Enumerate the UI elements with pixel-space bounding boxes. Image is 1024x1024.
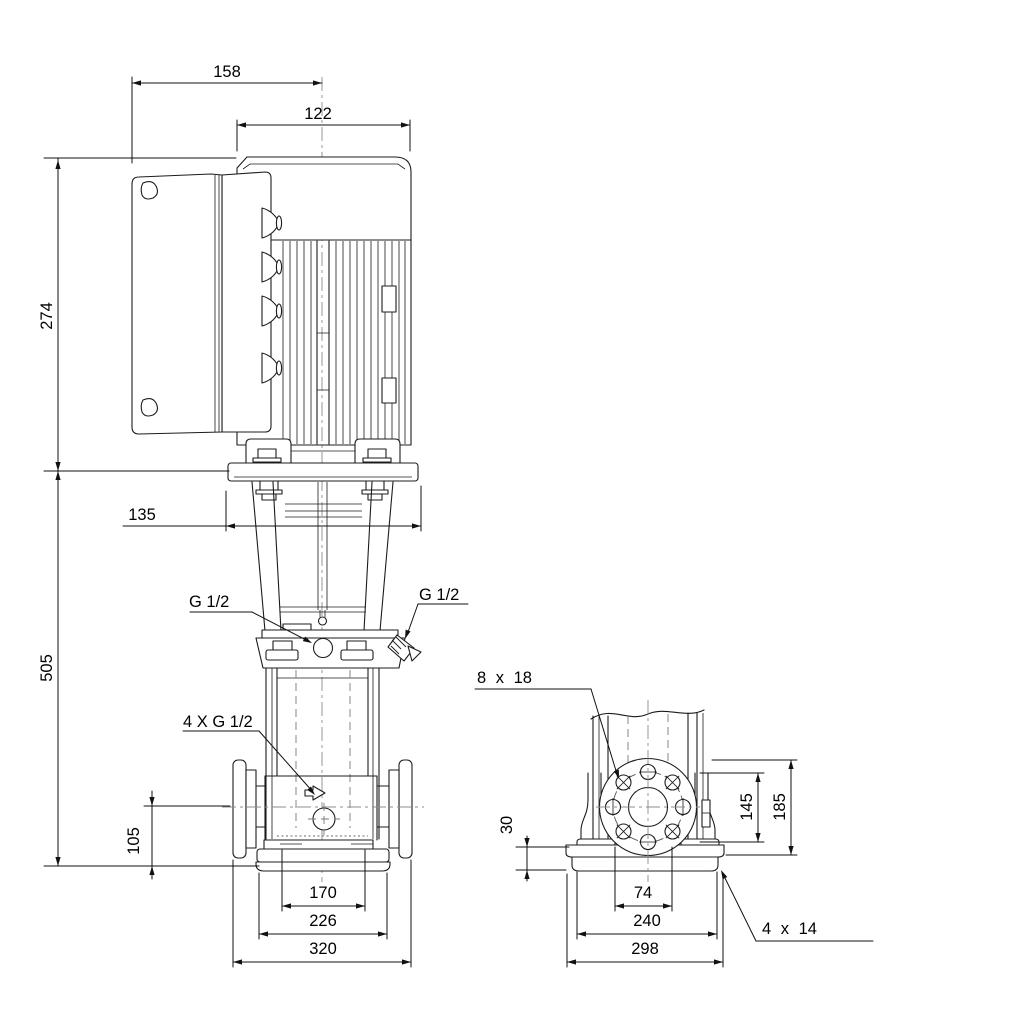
flange-left: [233, 760, 246, 858]
dim-298-label: 298: [631, 940, 659, 958]
8x18-label: 8 x 18: [477, 669, 532, 687]
dim-135-label: 135: [128, 506, 156, 524]
dim-145-label: 145: [738, 793, 756, 821]
motor-fins: [283, 241, 405, 444]
lid-screw-hole: [141, 182, 157, 199]
dim-226-label: 226: [309, 912, 337, 930]
dim-158-label: 158: [213, 63, 241, 81]
dim-505-label: 505: [38, 654, 56, 682]
pump-body: [256, 776, 389, 840]
pump-base: [256, 836, 390, 871]
dim-320-label: 320: [309, 940, 337, 958]
dim-74-label: 74: [634, 884, 652, 902]
g12-left-label: G 1/2: [189, 593, 229, 611]
motor-stool: [252, 482, 393, 631]
4xg12-label: 4 X G 1/2: [183, 713, 253, 731]
label-8x18: 8 x 18: [475, 669, 621, 780]
port-plug: [408, 646, 421, 661]
terminal-box: [132, 172, 282, 434]
air-vent-plug: [319, 617, 327, 625]
label-4x14: 4 x 14: [719, 869, 873, 941]
bolt-head: [368, 449, 386, 458]
dim-122: 122: [237, 105, 410, 151]
dim-122-label: 122: [304, 105, 332, 123]
dim-105-label: 105: [125, 827, 143, 855]
nameplate: [702, 800, 710, 827]
g12-port-hole: [314, 639, 333, 658]
dim-158: 158: [132, 63, 322, 163]
pump-head: [256, 624, 421, 668]
dim-30: 30: [498, 816, 569, 881]
pump-dimensional-drawing: 158 122 274 505: [0, 0, 1024, 1024]
lid-screw-hole: [141, 399, 157, 416]
mounting-flange-plate: [228, 463, 418, 481]
dim-170-label: 170: [309, 884, 337, 902]
g12-right-label: G 1/2: [419, 586, 459, 604]
bolt-head: [258, 449, 276, 458]
side-view: [132, 77, 424, 882]
dim-185-label: 185: [771, 793, 789, 821]
dim-240-label: 240: [633, 912, 661, 930]
dim-274-label: 274: [38, 302, 56, 330]
motor-shaft-housing: [317, 241, 329, 444]
coupling-guard: [280, 504, 366, 612]
motor-flange-assembly: [228, 439, 418, 500]
flange-right: [399, 760, 412, 858]
label-g12-right: G 1/2: [403, 586, 468, 640]
terminal-box-front: [132, 174, 222, 434]
drawing-canvas: 158 122 274 505: [0, 0, 1024, 1024]
4x14-label: 4 x 14: [762, 920, 817, 938]
motor-side-plate: [382, 378, 396, 403]
dim-30-label: 30: [498, 816, 516, 834]
end-view: [566, 700, 724, 882]
motor-rating-plate: [382, 286, 396, 312]
